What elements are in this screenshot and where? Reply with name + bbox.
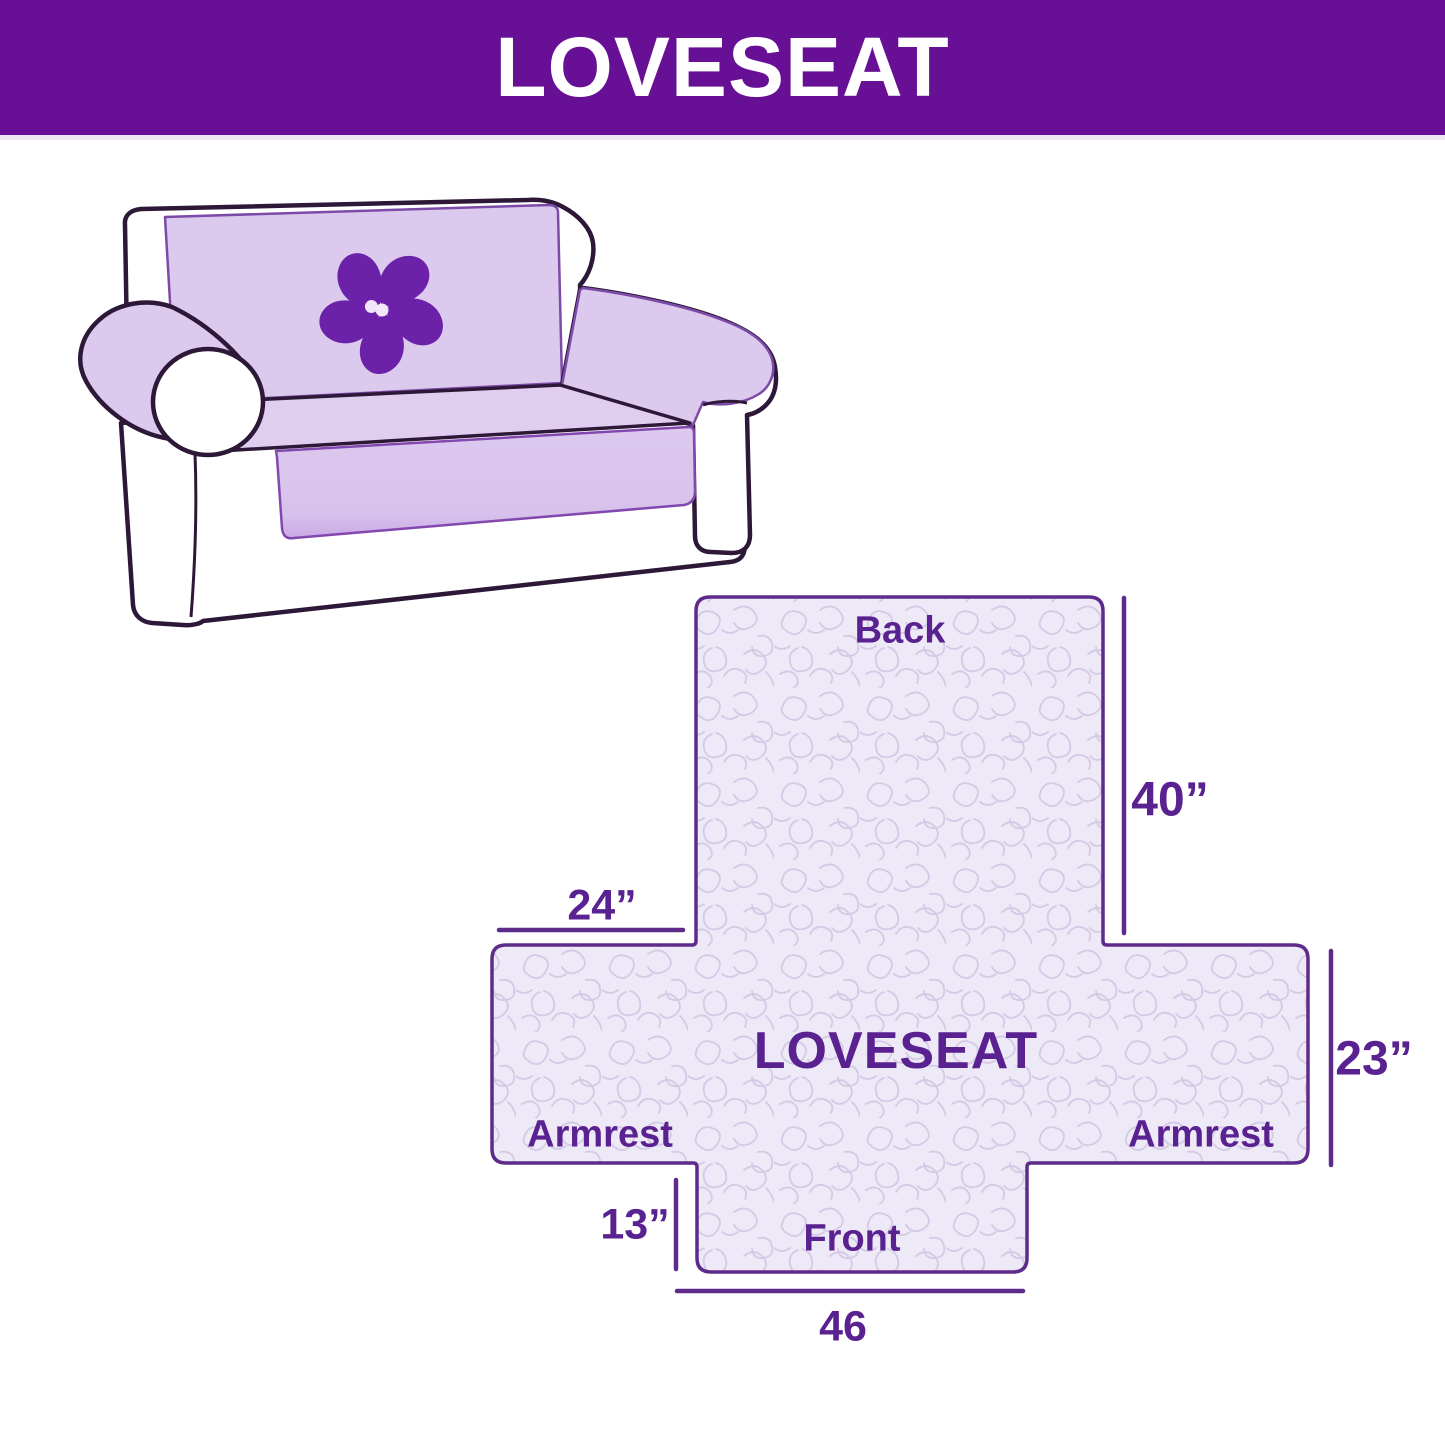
diagram-armrest-left-label: Armrest (527, 1114, 673, 1157)
header-underline (0, 135, 1445, 140)
diagram-center-label: LOVESEAT (754, 1021, 1038, 1081)
dim-front-width-label: 46 (819, 1303, 867, 1352)
dim-back-height-label: 40” (1131, 773, 1208, 828)
page-root: LOVESEAT (0, 0, 1445, 1445)
sofa-left-arm-face (153, 349, 263, 455)
dim-front-height-label: 13” (600, 1201, 669, 1250)
diagram-armrest-right-label: Armrest (1128, 1114, 1274, 1157)
diagram-front-label: Front (803, 1218, 900, 1261)
header-banner: LOVESEAT (0, 0, 1445, 135)
diagram-back-label: Back (855, 610, 946, 653)
header-title: LOVESEAT (495, 0, 950, 135)
cover-outline-shape (492, 597, 1308, 1272)
dim-back-width-label: 24” (567, 882, 636, 931)
dim-armrest-height-label: 23” (1335, 1032, 1412, 1087)
